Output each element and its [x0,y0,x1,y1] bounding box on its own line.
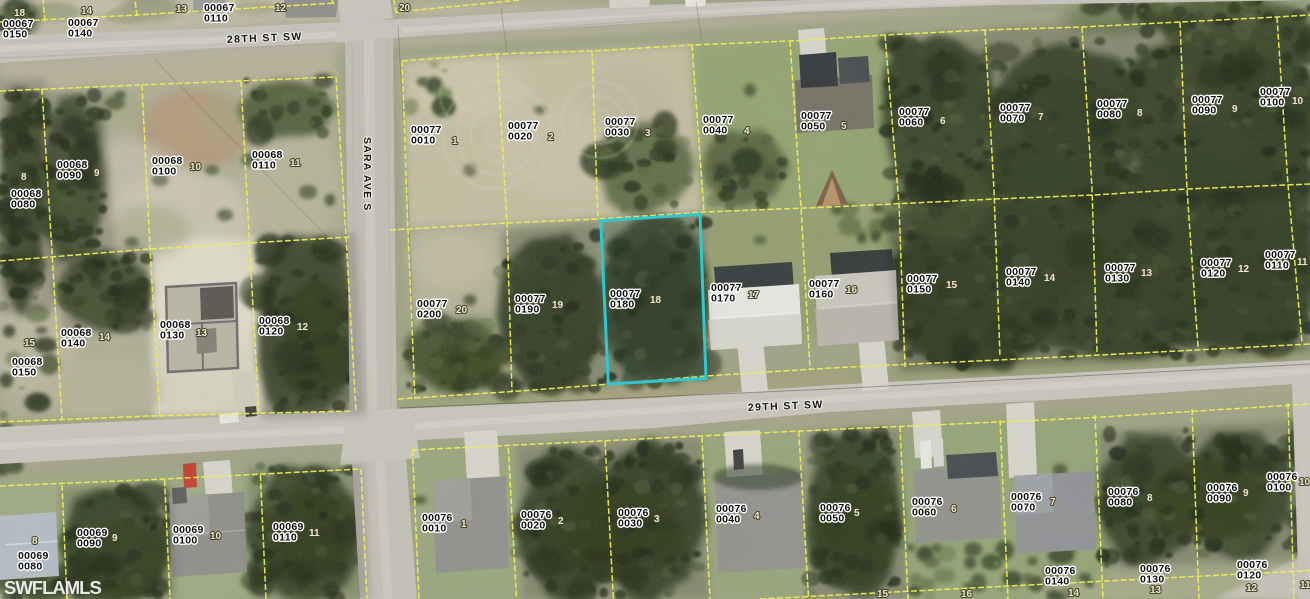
svg-text:4: 4 [754,511,760,522]
svg-text:10: 10 [210,531,222,542]
svg-text:14: 14 [1068,588,1080,599]
svg-text:9: 9 [1232,104,1238,115]
svg-text:18: 18 [650,295,662,306]
svg-text:11: 11 [290,158,301,169]
svg-text:8: 8 [1137,108,1143,119]
svg-text:10: 10 [1299,477,1310,488]
svg-text:13: 13 [176,4,188,15]
svg-text:18: 18 [14,8,26,19]
svg-text:10: 10 [1292,96,1304,107]
svg-text:16: 16 [846,285,858,296]
svg-text:3: 3 [654,514,660,525]
svg-text:5: 5 [841,121,847,132]
svg-text:13: 13 [196,328,208,339]
svg-text:6: 6 [951,504,957,515]
svg-text:12: 12 [1246,583,1258,594]
svg-text:9: 9 [112,533,118,544]
svg-text:9: 9 [1243,488,1249,499]
svg-text:14: 14 [1044,273,1056,284]
svg-text:19: 19 [552,300,564,311]
svg-text:17: 17 [748,290,760,301]
svg-text:14: 14 [81,6,93,17]
svg-text:11: 11 [1300,580,1310,591]
svg-text:20: 20 [456,305,468,316]
svg-text:1: 1 [461,519,467,530]
svg-text:20: 20 [399,3,411,14]
svg-text:12: 12 [275,3,287,14]
svg-text:15: 15 [24,338,36,349]
svg-text:7: 7 [1038,112,1044,123]
svg-text:2: 2 [548,132,554,143]
svg-text:7: 7 [1050,497,1056,508]
svg-text:15: 15 [877,589,889,599]
svg-text:14: 14 [99,332,111,343]
svg-text:8: 8 [21,172,27,183]
svg-text:SWFLAMLS: SWFLAMLS [4,577,101,598]
svg-text:5: 5 [854,508,860,519]
svg-text:6: 6 [940,116,946,127]
svg-text:SARA AVE S: SARA AVE S [361,137,373,212]
svg-text:16: 16 [961,589,973,599]
svg-text:13: 13 [1141,268,1153,279]
svg-text:1: 1 [452,136,458,147]
svg-text:2: 2 [558,516,564,527]
svg-text:3: 3 [645,128,651,139]
svg-text:4: 4 [744,126,750,137]
svg-text:8: 8 [32,536,38,547]
svg-text:15: 15 [946,280,958,291]
svg-text:12: 12 [297,322,309,333]
svg-text:8: 8 [1147,493,1153,504]
svg-text:11: 11 [1297,257,1308,268]
svg-text:10: 10 [190,162,202,173]
svg-text:9: 9 [94,168,100,179]
svg-text:12: 12 [1238,264,1250,275]
svg-text:11: 11 [309,528,320,539]
svg-text:13: 13 [1150,585,1162,596]
